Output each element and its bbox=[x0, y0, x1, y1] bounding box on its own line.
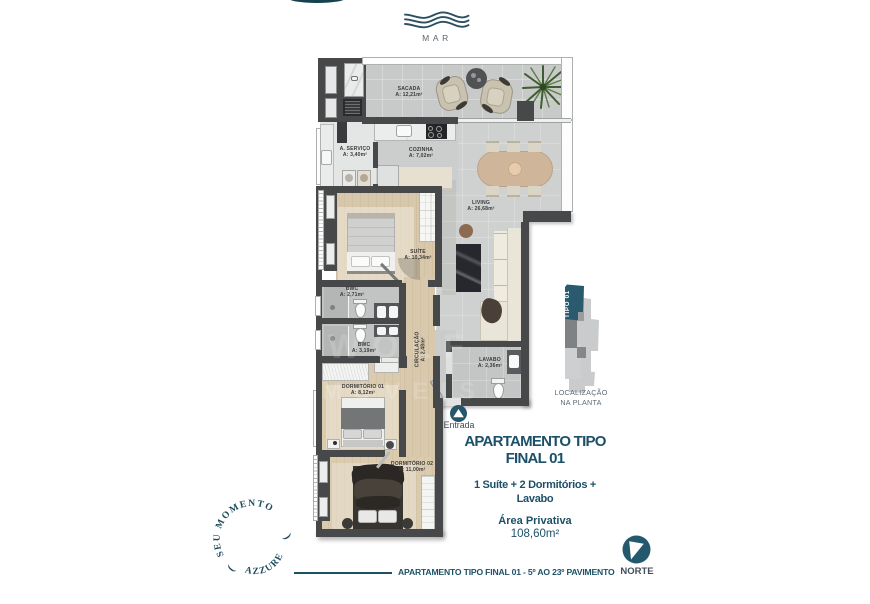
svg-text:TIPO 01: TIPO 01 bbox=[564, 290, 571, 318]
svg-text:AZZURE: AZZURE bbox=[244, 551, 286, 577]
svg-text:(: ( bbox=[225, 563, 237, 574]
svg-text:SEU MOMENTO: SEU MOMENTO bbox=[212, 499, 275, 558]
svg-text:): ) bbox=[282, 532, 294, 542]
